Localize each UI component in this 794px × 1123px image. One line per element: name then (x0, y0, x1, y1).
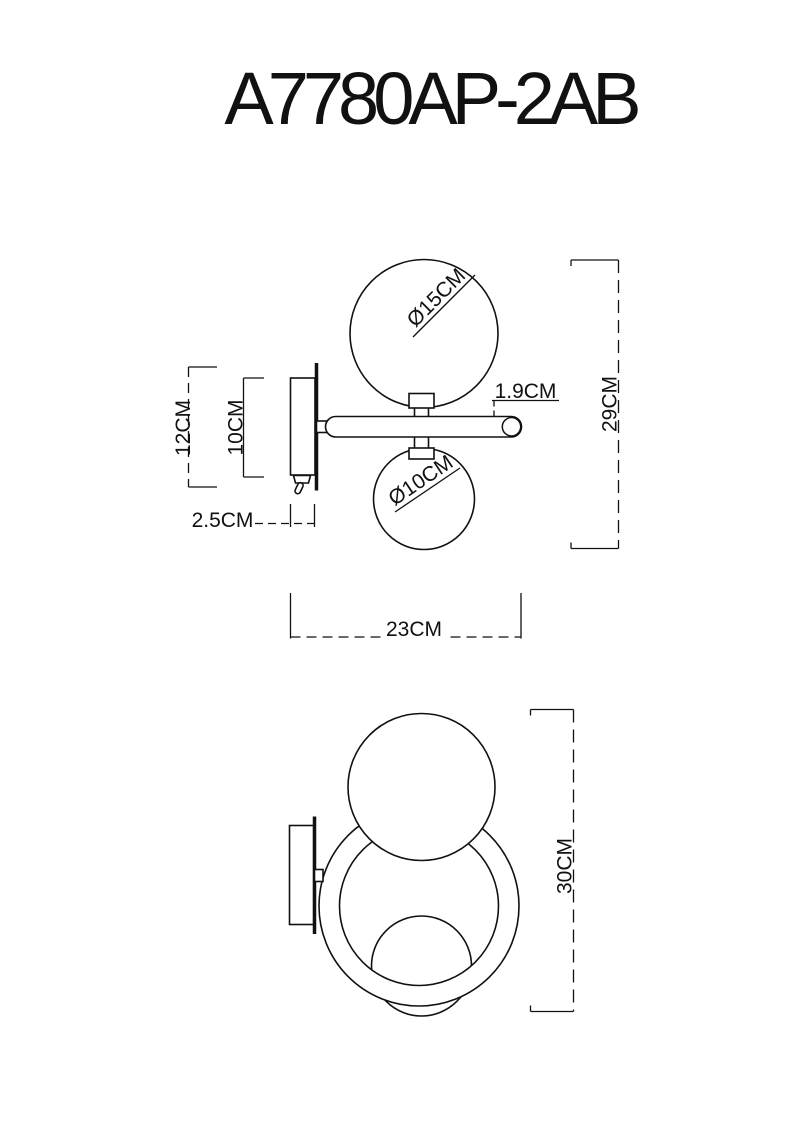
ring-wall-stub (315, 870, 324, 882)
technical-drawing: 12CM 10CM 2.5CM (0, 0, 794, 1123)
mounting-plate-side (291, 378, 316, 475)
large-globe-front (348, 714, 495, 861)
mounting-plate-front (290, 826, 314, 925)
dim-backplate-height: 12CM (172, 367, 217, 487)
dim-label-29cm: 29CM (599, 376, 622, 432)
dim-label-10cm: 10CM (225, 399, 248, 455)
drawing-page: A7780AP-2AB 12CM 10CM (0, 0, 794, 1123)
side-view: 12CM 10CM 2.5CM (172, 260, 622, 642)
dim-label-30cm: 30CM (554, 838, 577, 894)
dim-arm-diameter: 1.9CM (492, 380, 559, 417)
dim-plate-body-height: 10CM (225, 378, 265, 477)
arm-tube (326, 417, 522, 438)
dim-overall-projection: 23CM (291, 593, 522, 641)
large-globe-side (350, 260, 498, 408)
dim-plate-depth: 2.5CM (192, 504, 316, 532)
dim-overall-height-side: 29CM (571, 260, 622, 549)
dim-label-23cm: 23CM (386, 618, 442, 641)
dim-label-1-9cm: 1.9CM (495, 380, 557, 403)
front-view: 30CM (290, 710, 577, 1017)
dim-label-12cm: 12CM (172, 400, 195, 456)
toggle-switch (294, 476, 311, 495)
dim-label-2-5cm: 2.5CM (192, 509, 254, 532)
dim-overall-height-front: 30CM (531, 710, 577, 1012)
